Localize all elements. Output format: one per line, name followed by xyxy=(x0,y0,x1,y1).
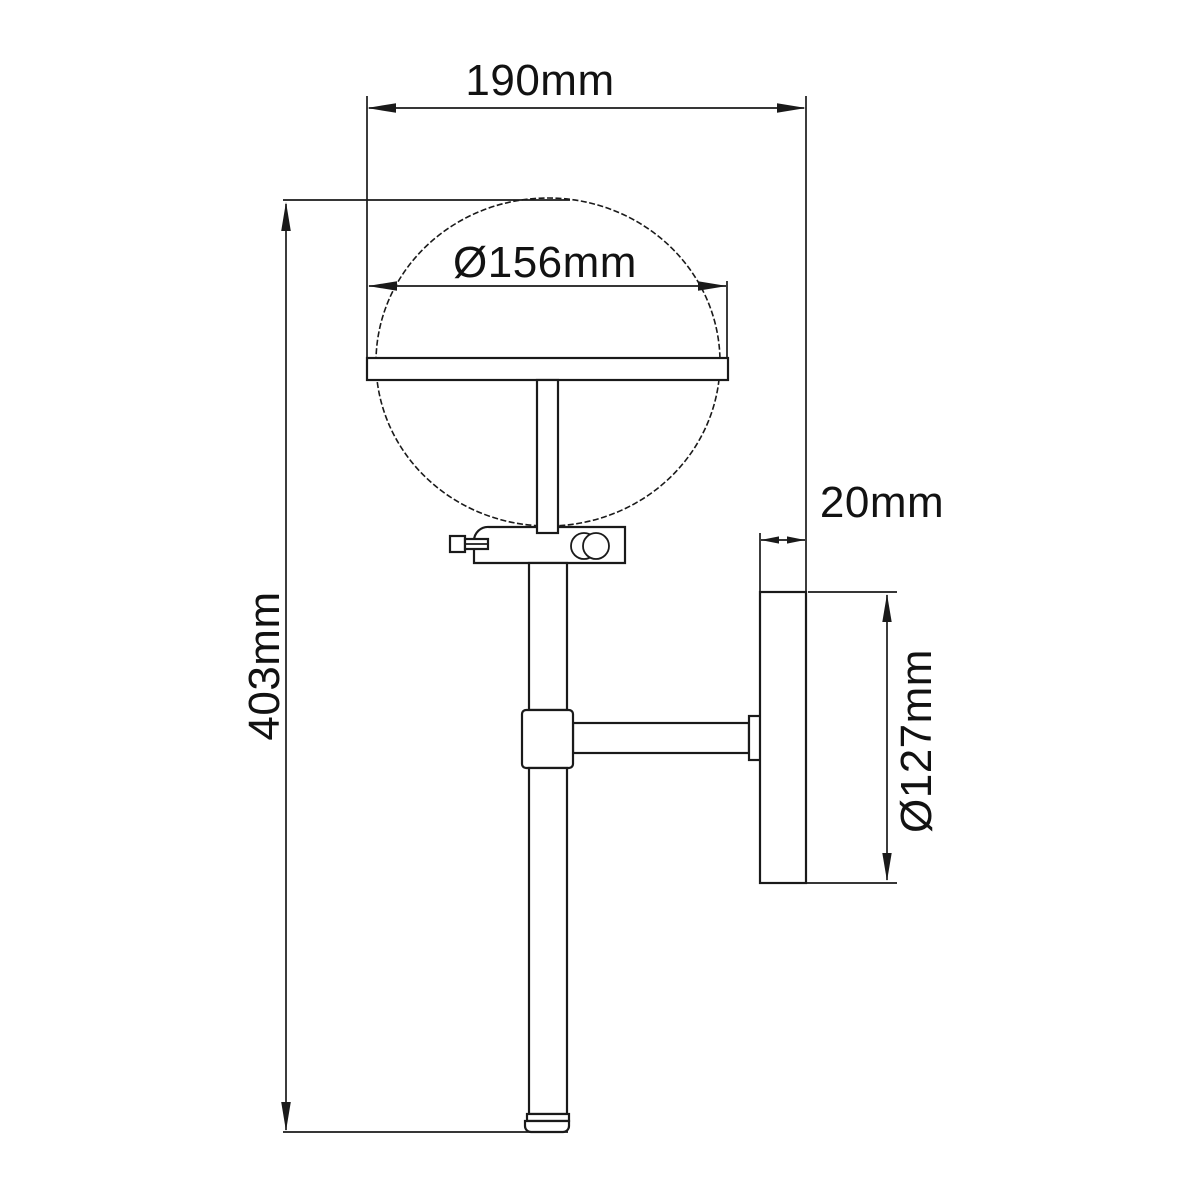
dimension-width-190mm: 190mm xyxy=(367,56,806,592)
fixture-drawing-svg: 190mm Ø156mm 403mm 20mm xyxy=(0,0,1200,1200)
arrowhead-up xyxy=(882,594,891,622)
pole-end-cap xyxy=(525,1121,569,1132)
arrowhead-down xyxy=(882,853,891,881)
arrowhead-right xyxy=(787,536,805,543)
dimension-label-globe-diameter: Ø156mm xyxy=(453,238,637,287)
dimension-depth-20mm: 20mm xyxy=(760,478,944,592)
dimension-backplate-127mm: Ø127mm xyxy=(806,592,941,883)
thumbscrew-side-knob xyxy=(450,536,465,552)
dimension-globe-diameter-156mm: Ø156mm xyxy=(368,238,727,358)
arm-tee-joint xyxy=(522,710,573,768)
dimension-label-depth: 20mm xyxy=(820,478,944,527)
globe-ring xyxy=(367,358,728,380)
wall-backplate xyxy=(760,592,806,883)
thumbscrew-front xyxy=(583,533,609,559)
arrowhead-down xyxy=(281,1102,291,1131)
fixture-outline xyxy=(367,198,806,1132)
stem-lower xyxy=(529,563,567,710)
dimension-height-403mm: 403mm xyxy=(240,200,570,1132)
stem-upper xyxy=(537,380,558,533)
arrowhead-right xyxy=(777,103,806,113)
dimension-label-backplate-diameter: Ø127mm xyxy=(892,649,941,833)
arrowhead-left xyxy=(368,281,397,291)
dimension-label-width: 190mm xyxy=(465,56,614,105)
wall-arm xyxy=(573,723,749,753)
technical-drawing-canvas: 190mm Ø156mm 403mm 20mm xyxy=(0,0,1200,1200)
arrowhead-left xyxy=(367,103,396,113)
pole xyxy=(529,768,567,1114)
arrowhead-left xyxy=(761,536,779,543)
dimension-label-height: 403mm xyxy=(240,591,289,740)
arrowhead-right xyxy=(698,281,727,291)
arrowhead-up xyxy=(281,202,291,231)
